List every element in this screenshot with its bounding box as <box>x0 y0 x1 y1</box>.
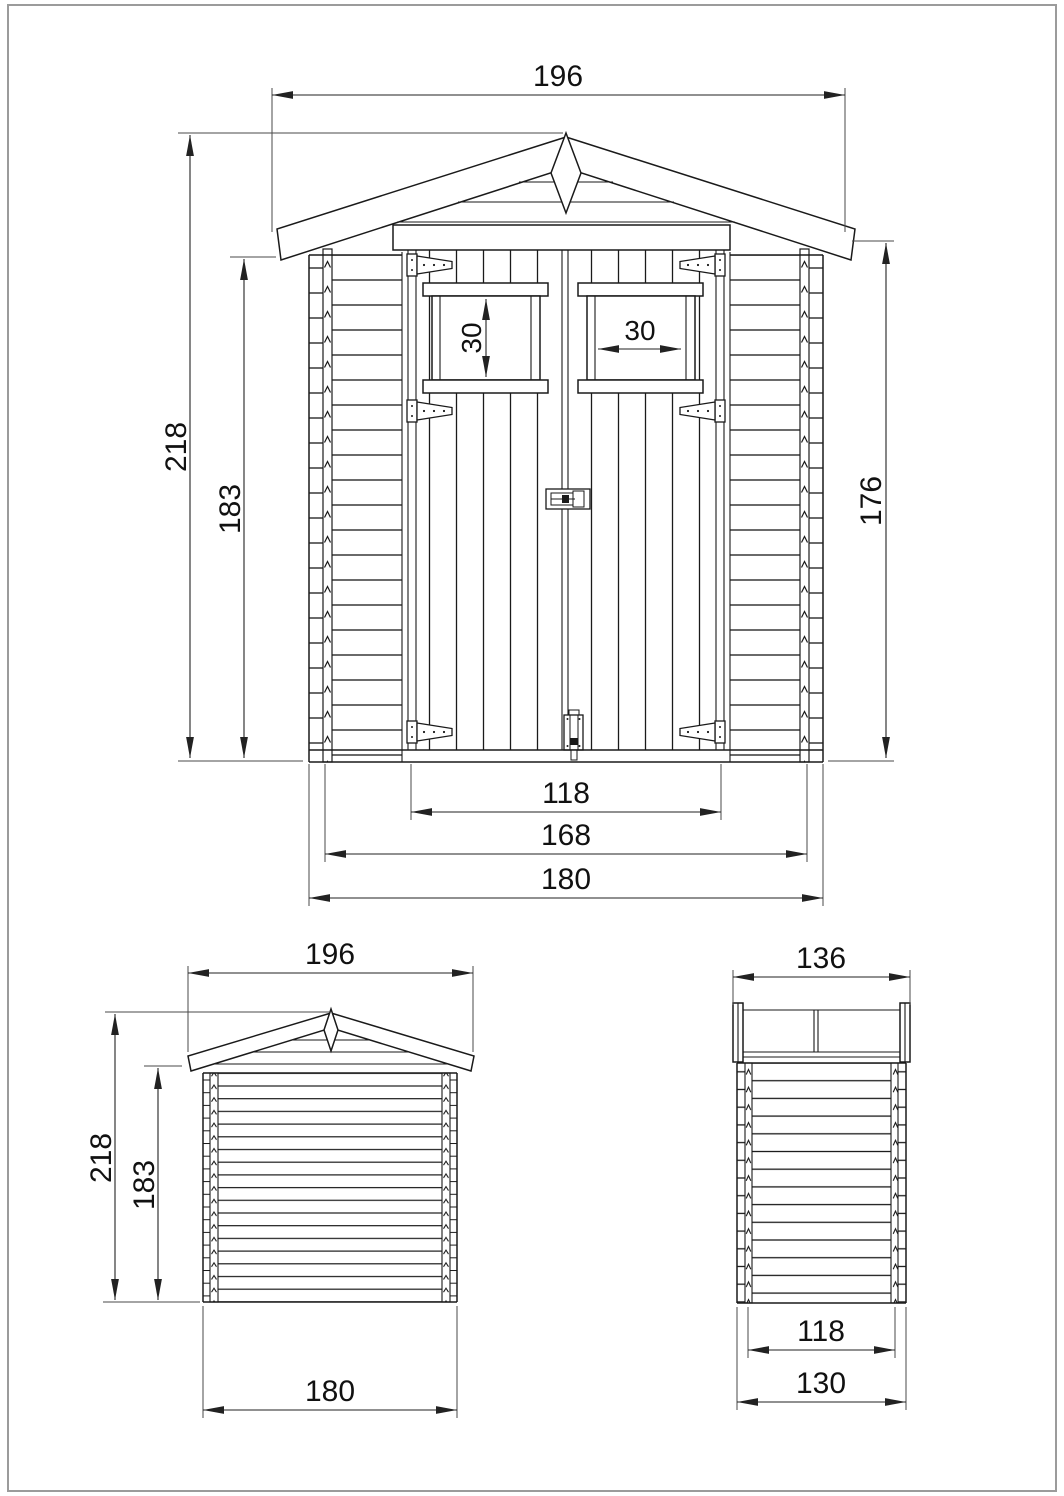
drawing-sheet: 196 218 183 176 30 30 <box>0 0 1064 1496</box>
corner-log-joint <box>800 249 809 762</box>
window-bottom-board <box>578 380 703 393</box>
dim-label: 130 <box>796 1367 846 1400</box>
dim-label: 183 <box>128 1160 161 1210</box>
wall-plank-strip <box>309 255 323 762</box>
front-wall-right <box>730 249 823 762</box>
corner-log-joint <box>891 1063 898 1303</box>
dim-label: 168 <box>541 819 591 852</box>
dim-label: 118 <box>797 1315 845 1348</box>
wall-planks <box>730 255 800 762</box>
wall-planks <box>332 255 402 762</box>
dim-label: 118 <box>542 777 590 810</box>
door-latch-icon <box>546 489 590 509</box>
dim-label: 183 <box>214 484 247 534</box>
dim-label: 218 <box>160 422 193 472</box>
wall-planks <box>218 1073 442 1302</box>
dim-label: 218 <box>85 1133 118 1183</box>
door-header-board <box>393 225 730 250</box>
wall-planks <box>752 1063 891 1303</box>
window-bottom-board <box>423 380 548 393</box>
wall-plank-strip <box>809 255 823 762</box>
dim-label: 180 <box>541 863 591 896</box>
window-top-board <box>578 283 703 296</box>
dim-label: 176 <box>855 476 888 526</box>
corner-log-joint <box>745 1063 752 1303</box>
dim-label: 136 <box>796 942 846 975</box>
corner-log-joint <box>323 249 332 762</box>
back-wall <box>203 1073 457 1302</box>
corner-log-joint <box>210 1073 218 1302</box>
dim-label: 196 <box>305 938 355 971</box>
front-wall-left <box>309 249 402 762</box>
dim-label: 30 <box>624 315 655 346</box>
corner-log-joint <box>442 1073 450 1302</box>
side-wall <box>737 1063 906 1303</box>
window-top-board <box>423 283 548 296</box>
dim-label: 196 <box>533 60 583 93</box>
shed-technical-drawing: 196 218 183 176 30 30 <box>0 0 1064 1496</box>
dim-label: 30 <box>456 322 487 353</box>
dim-label: 180 <box>305 1375 355 1408</box>
